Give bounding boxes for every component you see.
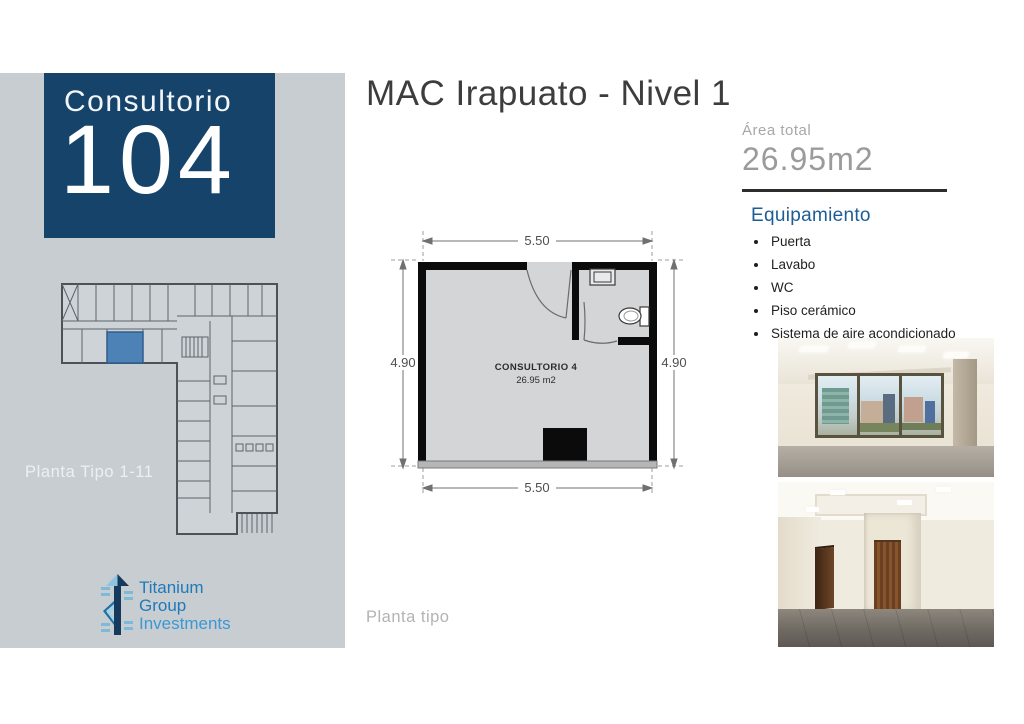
dim-bottom: 5.50 [524,480,549,495]
floor [778,609,994,647]
equipment-item: Piso cerámico [769,303,1004,318]
wood-door-left [815,545,834,610]
dim-left: 4.90 [390,355,415,370]
page: Consultorio 104 Planta [0,0,1024,724]
logo-line-3: Investments [139,615,231,633]
ceiling-light [848,342,877,348]
logo-line-1: Titanium [139,579,231,597]
ceiling-light [943,352,970,358]
dim-top: 5.50 [524,233,549,248]
overview-plan-caption: Planta Tipo 1-11 [25,463,154,482]
page-title: MAC Irapuato - Nivel 1 [366,74,731,114]
column-block [543,428,587,461]
room-area: 26.95 m2 [516,375,556,386]
bathroom-stub-wall [618,337,649,345]
equipment-item: WC [769,280,1004,295]
unit-title-box: Consultorio 104 [44,73,275,238]
ceiling-light [897,500,912,505]
ceiling-light [798,346,829,352]
equipment-item: Puerta [769,234,1004,249]
unit-floorplan: 5.50 4.90 4.90 5.50 C [385,228,705,498]
window [815,373,945,438]
area-and-equipment: Área total 26.95m2 Equipamiento PuertaLa… [742,122,1004,349]
room-name: CONSULTORIO 4 [495,362,578,373]
ceiling-light [806,507,819,512]
company-logo: Titanium Group Investments [99,573,231,639]
area-value: 26.95m2 [742,141,1004,178]
sidebar-panel: Consultorio 104 Planta [0,73,345,648]
ceiling-light [936,487,951,492]
window-wall [418,461,657,468]
floorplan-caption: Planta tipo [366,608,449,627]
equipment-item: Lavabo [769,257,1004,272]
sink-icon [590,269,615,285]
wood-door-center [874,540,901,614]
building-overview-plan [52,276,282,544]
equipment-heading: Equipamiento [751,205,1004,227]
ceiling-light [830,490,845,495]
company-logo-text: Titanium Group Investments [139,579,231,633]
bathroom-wall [572,262,579,340]
area-label: Área total [742,122,1004,139]
window-pane [818,376,857,435]
wall-column [953,359,977,454]
unit-number: 104 [60,111,275,208]
ceiling-light [898,346,927,352]
floor [778,446,994,477]
window-pane [902,376,941,435]
dim-right: 4.90 [661,355,686,370]
titanium-arrow-icon [99,573,135,639]
highlighted-unit-104[interactable] [107,332,143,363]
divider-line [742,189,947,192]
logo-line-2: Group [139,597,231,615]
photo-office-doors-render [778,482,994,647]
window-pane [860,376,899,435]
stairs-bottom [242,514,272,533]
equipment-list: PuertaLavaboWCPiso cerámicoSistema de ai… [742,234,1004,341]
photo-office-window-render [778,338,994,477]
